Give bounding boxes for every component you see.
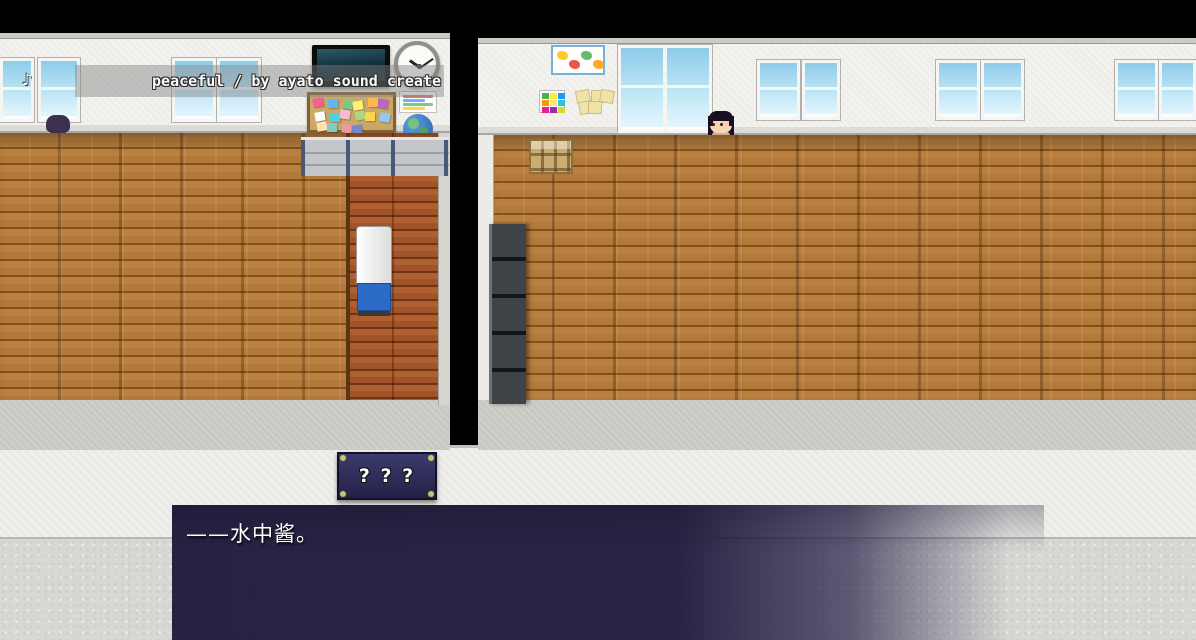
classroom-window bbox=[0, 58, 34, 122]
grid-cell bbox=[542, 93, 549, 99]
window-divider bbox=[663, 48, 667, 130]
music-note-icon: ♪ bbox=[22, 70, 32, 89]
character-eye bbox=[712, 123, 715, 126]
character-hair-side bbox=[729, 116, 733, 126]
board-note bbox=[377, 98, 388, 108]
board-note bbox=[328, 99, 338, 108]
map-continent bbox=[569, 60, 580, 69]
metal-shelf bbox=[301, 137, 449, 176]
classroom-window bbox=[936, 60, 980, 120]
left-lower-wall bbox=[0, 400, 450, 450]
board-note bbox=[379, 112, 390, 122]
map-continent bbox=[593, 60, 604, 69]
board-note bbox=[352, 100, 363, 110]
left-wall-top-edge bbox=[0, 33, 450, 39]
shelf-support bbox=[346, 140, 350, 176]
map-continent bbox=[581, 51, 592, 60]
bgm-credit-banner: peaceful / by ayato sound create bbox=[75, 65, 444, 97]
game-viewport[interactable]: ? ? ? peaceful / by ayato sound create ♪… bbox=[0, 0, 1196, 640]
sticky-note bbox=[588, 101, 602, 114]
classroom-window bbox=[802, 60, 840, 120]
board-note bbox=[316, 121, 327, 131]
window-crossbar bbox=[805, 87, 837, 90]
door-nameplate-label: ? ? ? bbox=[359, 465, 415, 487]
window-crossbar bbox=[41, 87, 77, 90]
sticky-notes-cluster bbox=[576, 90, 616, 118]
dialogue-box[interactable]: ——水中酱。 bbox=[172, 505, 1044, 640]
character-eye bbox=[720, 123, 723, 126]
right-lower-wall bbox=[478, 400, 1196, 450]
poster-line bbox=[403, 99, 425, 102]
window-crossbar bbox=[939, 87, 977, 90]
character-hair bbox=[46, 115, 70, 133]
board-note bbox=[339, 109, 350, 119]
grid-cell bbox=[542, 107, 549, 113]
classroom-window bbox=[618, 45, 712, 133]
water-cooler-tank bbox=[357, 283, 391, 311]
map-continent bbox=[557, 51, 568, 60]
poster-line bbox=[403, 107, 425, 110]
grid-cell bbox=[550, 100, 557, 106]
bulletin-board bbox=[307, 92, 396, 133]
bgm-credit-text: peaceful / by ayato sound create bbox=[152, 72, 441, 90]
grid-cell bbox=[542, 100, 549, 106]
grid-cell bbox=[558, 93, 565, 99]
locker-column bbox=[489, 224, 526, 404]
grid-cell bbox=[558, 107, 565, 113]
classroom-window bbox=[1159, 60, 1196, 120]
grid-cell bbox=[558, 100, 565, 106]
color-grid-poster bbox=[539, 90, 565, 113]
right-wall-top-edge bbox=[478, 38, 1196, 44]
poster-line bbox=[403, 103, 433, 106]
classroom-window bbox=[981, 60, 1024, 120]
window-crossbar bbox=[1118, 87, 1155, 90]
dialogue-text: ——水中酱。 bbox=[186, 518, 318, 548]
board-note bbox=[327, 123, 337, 132]
window-crossbar bbox=[984, 87, 1021, 90]
right-classroom-floor[interactable] bbox=[494, 135, 1196, 405]
shelf-support bbox=[301, 140, 305, 176]
world-map-poster bbox=[551, 45, 605, 75]
window-crossbar bbox=[1162, 87, 1193, 90]
classroom-window bbox=[757, 60, 800, 120]
water-cooler-base bbox=[358, 311, 390, 316]
door-nameplate[interactable]: ? ? ? bbox=[337, 452, 437, 500]
left-classroom-floor[interactable] bbox=[0, 133, 352, 405]
window-crossbar bbox=[760, 87, 797, 90]
shelf-support bbox=[444, 140, 448, 176]
board-note bbox=[365, 112, 375, 121]
board-note bbox=[312, 97, 323, 107]
shelf-support bbox=[391, 140, 395, 176]
grid-cell bbox=[550, 107, 557, 113]
wooden-cabinet bbox=[529, 139, 573, 174]
water-cooler-body bbox=[356, 226, 392, 284]
classroom-window bbox=[1115, 60, 1158, 120]
water-cooler[interactable] bbox=[356, 226, 392, 318]
board-note bbox=[314, 111, 325, 121]
board-note bbox=[354, 110, 365, 120]
grid-cell bbox=[550, 93, 557, 99]
